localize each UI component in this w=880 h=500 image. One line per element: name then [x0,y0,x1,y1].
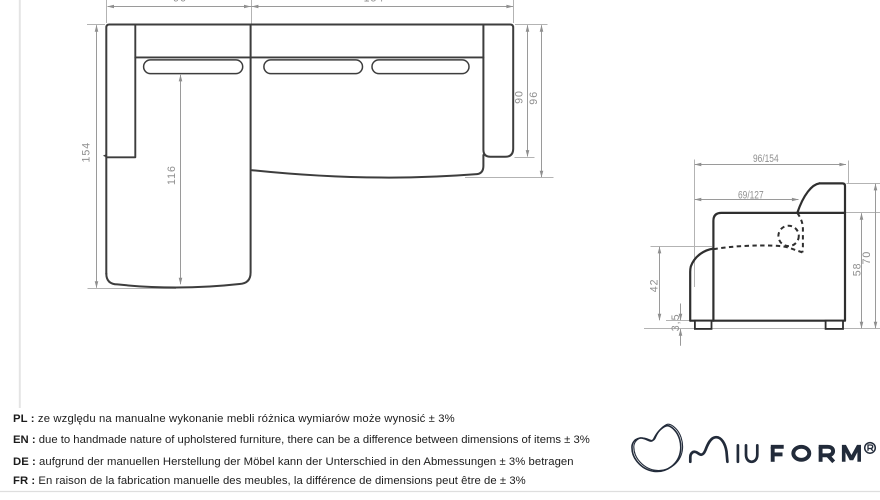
svg-text:154: 154 [364,0,385,4]
svg-text:42: 42 [648,279,660,293]
svg-text:69/127: 69/127 [738,190,764,202]
svg-text:96/154: 96/154 [753,153,779,165]
svg-text:70: 70 [861,251,873,265]
svg-text:90: 90 [514,90,526,104]
svg-text:3,5: 3,5 [670,314,682,332]
svg-text:116: 116 [166,165,178,185]
svg-text:96: 96 [173,0,187,4]
svg-text:154: 154 [80,142,92,163]
svg-text:96: 96 [528,91,540,105]
